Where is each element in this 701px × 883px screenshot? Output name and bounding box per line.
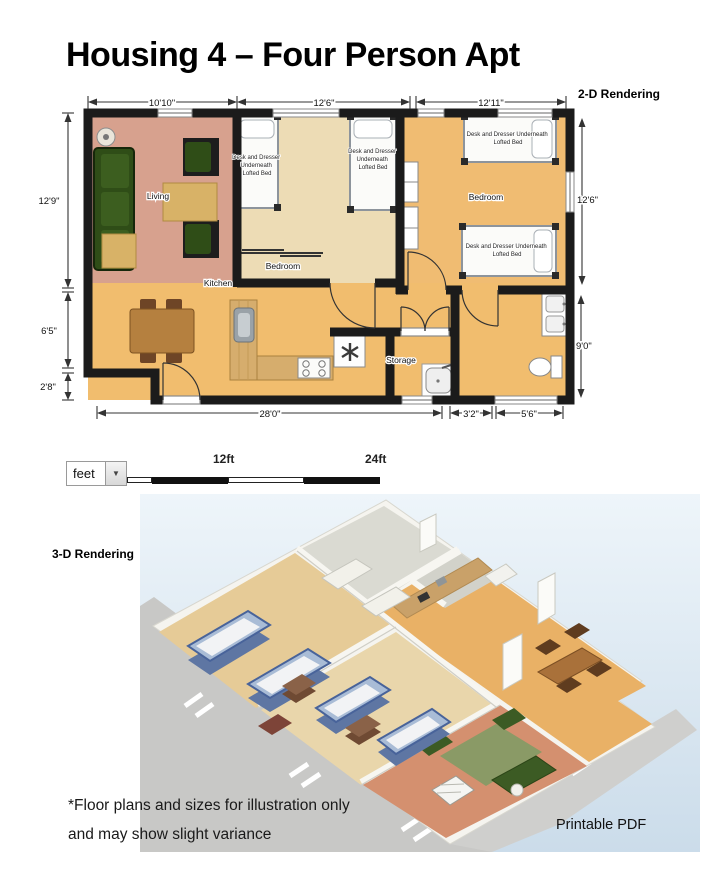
armchair	[183, 138, 219, 176]
scale-segment	[228, 477, 304, 483]
svg-text:12'9": 12'9"	[38, 196, 59, 207]
footnote-line1: *Floor plans and sizes for illustration …	[68, 797, 350, 815]
scale-label-24ft: 24ft	[365, 452, 386, 466]
dim-top-1: 10'10"	[88, 96, 237, 109]
svg-text:9'0": 9'0"	[576, 341, 592, 352]
room-label-bedroom-right: Bedroom	[469, 192, 504, 202]
footnote-line2: and may show slight variance	[68, 826, 271, 844]
shower	[422, 364, 455, 397]
printable-pdf-link[interactable]: Printable PDF	[556, 817, 646, 833]
svg-text:12'6": 12'6"	[313, 98, 334, 109]
lofted-bed	[347, 113, 397, 213]
stove	[298, 358, 330, 378]
svg-text:6'5": 6'5"	[41, 326, 57, 337]
scale-bar	[127, 476, 380, 484]
lofted-bed	[459, 223, 559, 279]
coffee-table	[163, 183, 217, 221]
dim-top-3: 12'11"	[416, 96, 566, 109]
svg-text:2'8": 2'8"	[40, 382, 56, 393]
floor-plan-2d: Living Bedroom Bedroom Kitchen Storage D…	[30, 80, 620, 458]
label-3d-rendering: 3-D Rendering	[52, 547, 134, 561]
svg-text:28'0": 28'0"	[259, 409, 280, 420]
room-label-living: Living	[147, 191, 169, 201]
svg-text:12'6": 12'6"	[577, 195, 598, 206]
room-label-storage: Storage	[386, 355, 416, 365]
scale-segment	[152, 477, 228, 484]
side-table	[102, 234, 136, 268]
dining-table	[130, 309, 194, 353]
page-title: Housing 4 – Four Person Apt	[66, 36, 520, 75]
units-dropdown-value: feet	[67, 466, 105, 481]
scale-segment	[304, 477, 380, 484]
floor-lamp-3d	[511, 784, 523, 796]
dim-left-3: 2'8"	[40, 373, 74, 400]
dim-left-1: 12'9"	[38, 113, 74, 288]
dim-left-2: 6'5"	[41, 292, 74, 368]
dim-bottom-3: 5'6"	[496, 406, 563, 420]
dim-bottom-1: 28'0"	[97, 406, 442, 420]
armchair	[183, 220, 219, 258]
utility-appliance	[334, 336, 365, 367]
dim-bottom-2: 3'2"	[450, 406, 492, 420]
lofted-bed	[461, 113, 559, 165]
scale-label-12ft: 12ft	[213, 452, 234, 466]
toilet	[529, 356, 562, 378]
dim-top-2: 12'6"	[237, 96, 410, 109]
scale-segment	[127, 477, 152, 483]
svg-text:5'6": 5'6"	[521, 409, 537, 420]
bathroom-vanity	[542, 292, 568, 336]
svg-text:10'10": 10'10"	[149, 98, 175, 109]
dim-right-2: 9'0"	[576, 295, 592, 398]
units-dropdown[interactable]: feet ▼	[66, 461, 127, 486]
room-label-kitchen: Kitchen	[204, 278, 233, 288]
svg-text:12'11": 12'11"	[478, 98, 504, 109]
dim-right-1: 12'6"	[577, 118, 598, 285]
svg-text:3'2": 3'2"	[463, 409, 479, 420]
dining-set	[130, 299, 194, 363]
chevron-down-icon[interactable]: ▼	[105, 462, 126, 485]
room-label-bedroom-middle: Bedroom	[266, 261, 301, 271]
